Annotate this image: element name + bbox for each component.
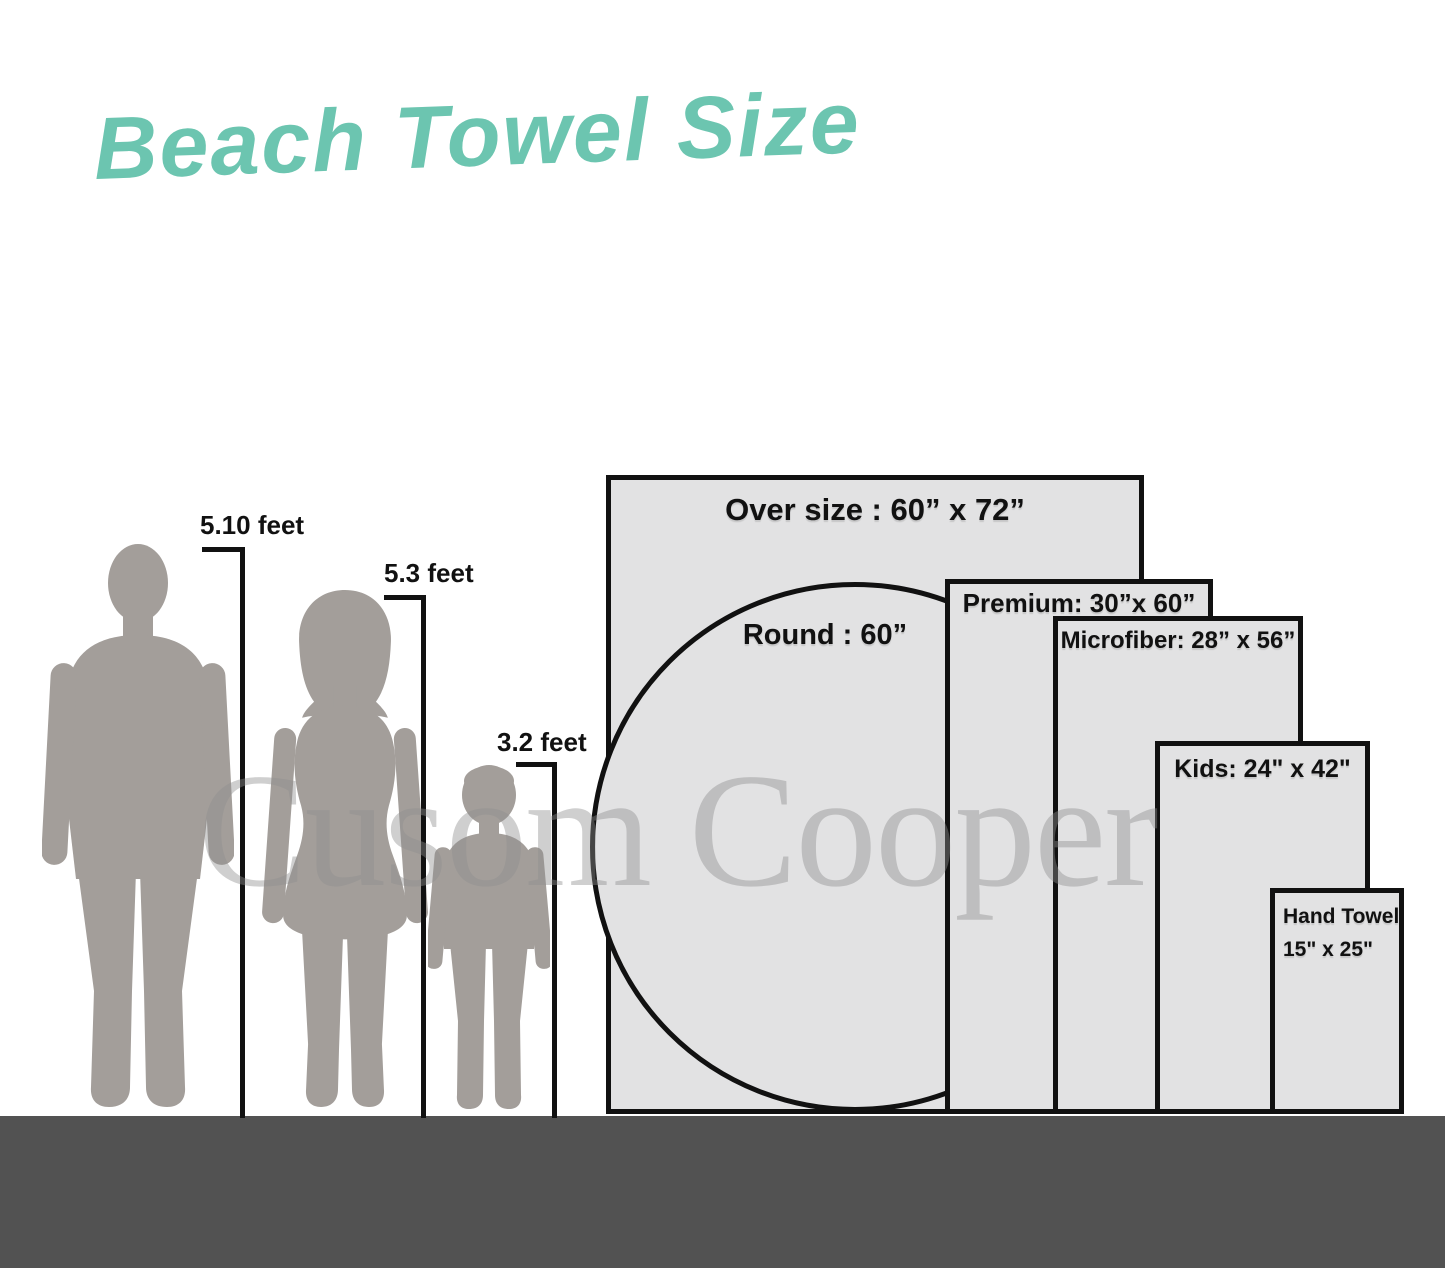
child-height-bracket	[516, 762, 557, 1118]
child-height-label: 3.2 feet	[497, 727, 587, 758]
towel-premium-label: Premium: 30”x 60”	[950, 588, 1208, 619]
page-title: Beach Towel Size	[92, 71, 862, 200]
towel-microfiber-label: Microfiber: 28” x 56”	[1058, 627, 1298, 655]
towel-oversize-label: Over size : 60” x 72”	[611, 492, 1139, 528]
towel-hand-label-line1: Hand Towel	[1283, 901, 1399, 934]
beach-towel-size-infographic: Beach Towel Size Over size : 60” x 72” R…	[0, 0, 1445, 1268]
woman-height-bracket	[384, 595, 426, 1118]
ground-bar	[0, 1116, 1445, 1268]
man-height-label: 5.10 feet	[200, 510, 304, 541]
woman-height-label: 5.3 feet	[384, 558, 474, 589]
towel-hand-towel: Hand Towel 15" x 25"	[1270, 888, 1404, 1114]
towel-hand-label-line2: 15" x 25"	[1283, 934, 1399, 967]
man-height-bracket	[202, 547, 245, 1118]
towel-kids-label: Kids: 24" x 42"	[1160, 755, 1365, 784]
